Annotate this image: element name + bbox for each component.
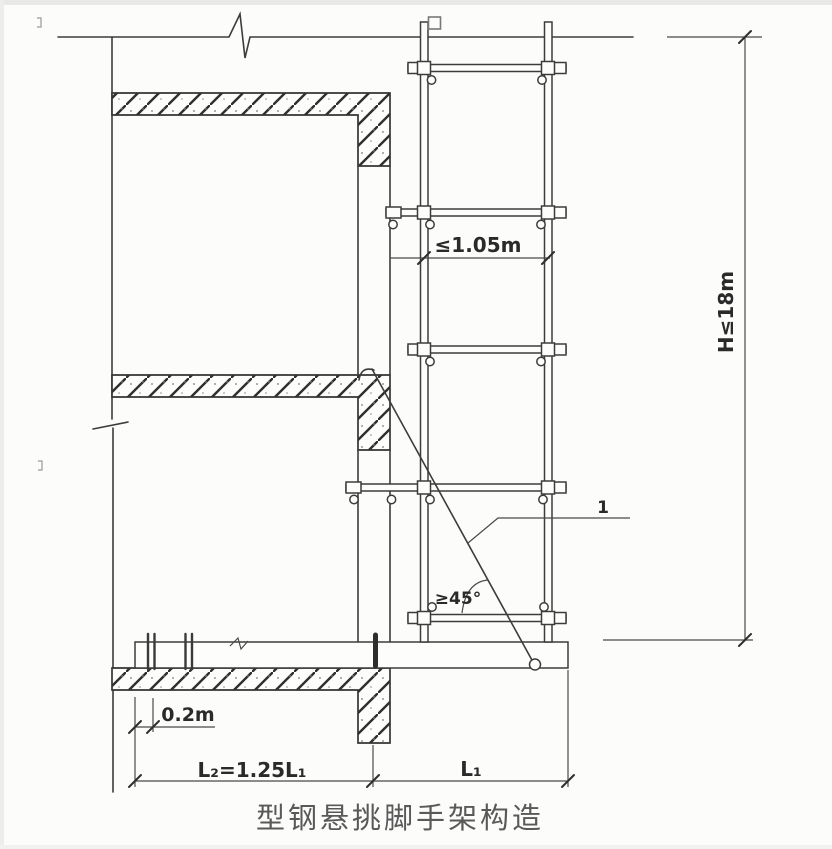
ledger-row-5: [408, 603, 566, 625]
hook: [350, 495, 358, 503]
scaffold-post-inner: [421, 22, 429, 642]
coupler: [542, 62, 555, 75]
angle-label: ≥45°: [435, 589, 481, 609]
coupler: [542, 612, 555, 625]
ledger-tube: [346, 484, 566, 491]
callout-1-label: 1: [597, 498, 609, 518]
wall-break-symbol: [93, 422, 128, 429]
hook: [427, 76, 435, 84]
hook: [537, 357, 545, 365]
hook: [389, 220, 397, 228]
hook: [426, 220, 434, 228]
hook: [538, 76, 546, 84]
hook: [387, 495, 395, 503]
coupler: [418, 62, 431, 75]
post-spacing-label: ≤1.05m: [435, 233, 522, 257]
floor-slab-top: [112, 93, 390, 166]
tie-eye-ring: [530, 659, 541, 670]
construction-diagram-page: ≥45° 1 ≤1.05m H≤18m: [0, 0, 832, 849]
floor-slab-bottom: [112, 668, 390, 743]
ledger-tube: [386, 209, 566, 216]
coupler: [542, 481, 555, 494]
anchor-offset-label: 0.2m: [161, 704, 214, 726]
cantilever-i-beam: [135, 634, 568, 669]
diagram-canvas: ≥45° 1 ≤1.05m H≤18m: [0, 0, 832, 849]
hook: [426, 357, 434, 365]
ledger-row-1: [408, 62, 566, 85]
coupler: [418, 612, 431, 625]
ledger-row-3: [408, 343, 566, 366]
dim-post-spacing: ≤1.05m: [390, 233, 554, 264]
diagram-title: 型钢悬挑脚手架构造: [256, 801, 544, 835]
anchored-length-label: L₂=1.25L₁: [197, 758, 306, 782]
artifact-mark: [38, 461, 42, 470]
ledger-row-4: [346, 481, 566, 504]
artifact-mark: [37, 18, 41, 27]
ledger-end-cap: [346, 482, 361, 493]
coupler: [418, 343, 431, 356]
coupler: [418, 206, 431, 219]
hook: [540, 603, 548, 611]
dim-total-height: H≤18m: [603, 31, 762, 646]
scaffold-post-outer: [545, 22, 553, 642]
cantilever-length-label: L₁: [460, 757, 482, 781]
coupler: [542, 343, 555, 356]
total-height-label: H≤18m: [714, 271, 738, 353]
hook: [426, 495, 434, 503]
floor-slab-middle: [112, 375, 390, 450]
section-marker-square: [429, 17, 441, 29]
beam-body: [135, 642, 568, 668]
hook: [537, 220, 545, 228]
hook: [539, 495, 547, 503]
ledger-end-cap: [386, 207, 401, 218]
ledger-row-2: [386, 206, 566, 229]
coupler: [542, 206, 555, 219]
angle-annotation: ≥45°: [435, 580, 488, 613]
coupler: [418, 481, 431, 494]
